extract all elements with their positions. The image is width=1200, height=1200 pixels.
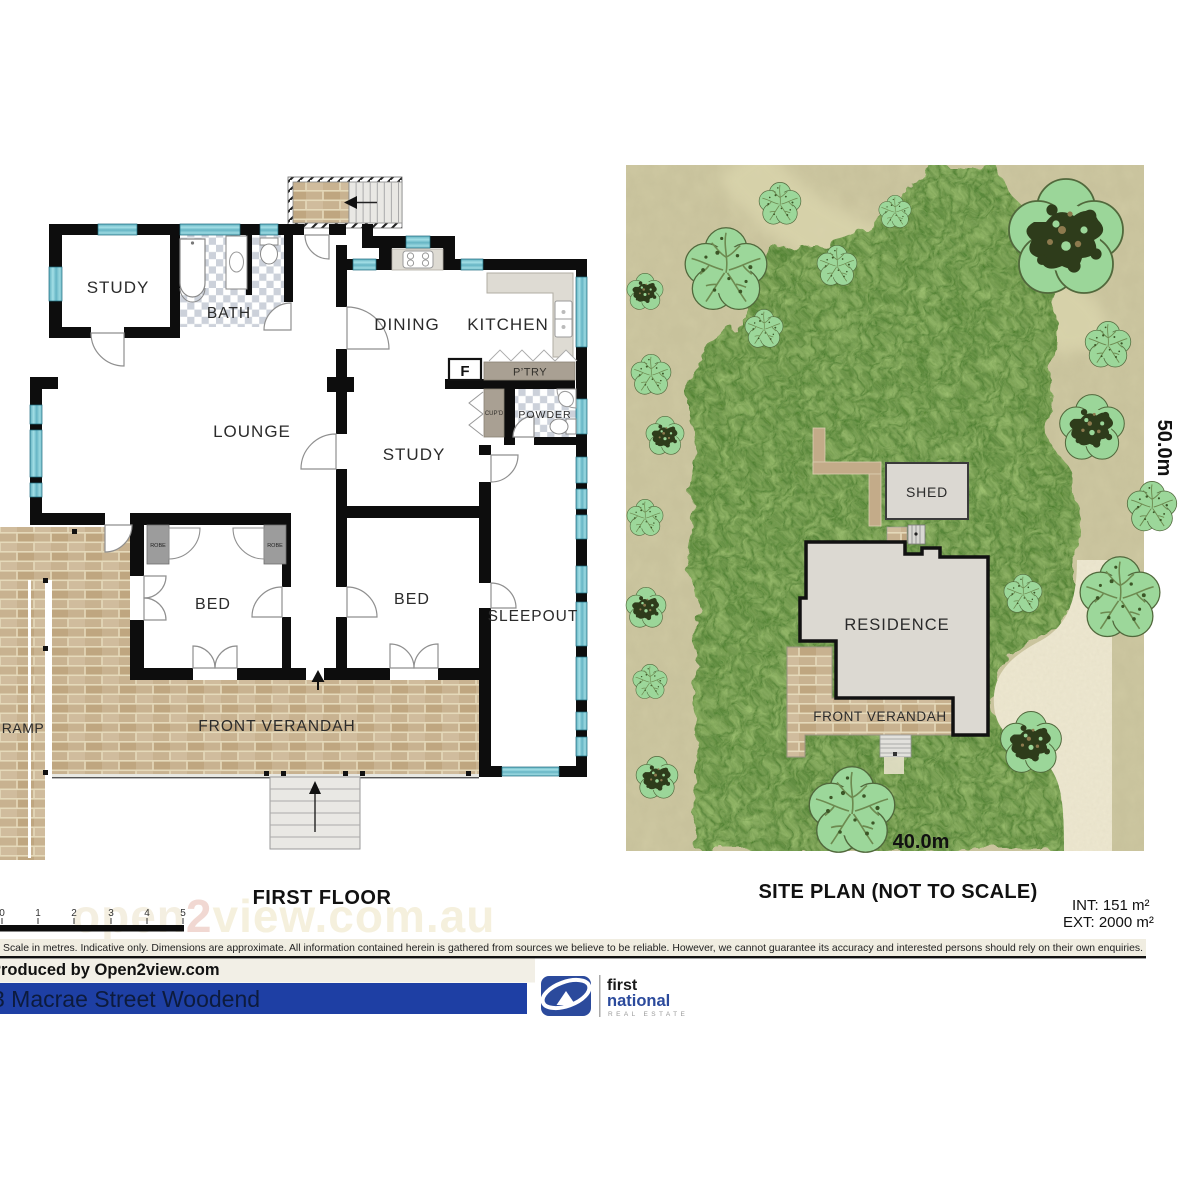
svg-text:RESIDENCE: RESIDENCE <box>844 616 949 634</box>
svg-text:0: 0 <box>0 908 5 919</box>
svg-text:KITCHEN: KITCHEN <box>467 315 549 334</box>
svg-text:REAL ESTATE: REAL ESTATE <box>608 1011 688 1018</box>
svg-text:1: 1 <box>35 908 41 919</box>
svg-text:RAMP: RAMP <box>2 720 44 736</box>
svg-text:3 Macrae Street Woodend: 3 Macrae Street Woodend <box>0 986 260 1012</box>
svg-text:Scale in metres. Indicative on: Scale in metres. Indicative only. Dimens… <box>3 943 1143 954</box>
svg-text:Produced by Open2view.com: Produced by Open2view.com <box>0 961 220 979</box>
svg-text:ROBE: ROBE <box>150 543 166 549</box>
svg-text:2: 2 <box>71 908 77 919</box>
svg-text:DINING: DINING <box>374 315 440 334</box>
svg-text:4: 4 <box>144 908 150 919</box>
svg-text:40.0m: 40.0m <box>893 831 950 853</box>
svg-text:F: F <box>460 363 469 380</box>
svg-text:3: 3 <box>108 908 114 919</box>
svg-text:50.0m: 50.0m <box>1153 420 1175 477</box>
svg-text:LOUNGE: LOUNGE <box>213 422 291 441</box>
svg-text:INT: 151 m²: INT: 151 m² <box>1072 897 1150 914</box>
svg-text:EXT: 2000 m²: EXT: 2000 m² <box>1063 914 1154 931</box>
svg-text:national: national <box>607 992 670 1010</box>
svg-text:BED: BED <box>394 591 430 608</box>
svg-text:STUDY: STUDY <box>383 445 446 464</box>
svg-text:POWDER: POWDER <box>518 409 571 421</box>
svg-text:ROBE: ROBE <box>267 543 283 549</box>
svg-text:FRONT VERANDAH: FRONT VERANDAH <box>813 709 946 724</box>
svg-text:SHED: SHED <box>906 484 948 500</box>
svg-text:CUP’D: CUP’D <box>485 411 504 417</box>
svg-text:BED: BED <box>195 596 231 613</box>
svg-text:SITE PLAN (NOT TO SCALE): SITE PLAN (NOT TO SCALE) <box>758 881 1037 903</box>
svg-text:STUDY: STUDY <box>87 278 150 297</box>
svg-text:P’TRY: P’TRY <box>513 367 547 379</box>
svg-text:FRONT VERANDAH: FRONT VERANDAH <box>198 718 356 735</box>
svg-text:BATH: BATH <box>207 305 251 322</box>
svg-text:5: 5 <box>180 908 186 919</box>
svg-text:FIRST FLOOR: FIRST FLOOR <box>253 887 392 909</box>
svg-text:SLEEPOUT: SLEEPOUT <box>488 608 579 625</box>
